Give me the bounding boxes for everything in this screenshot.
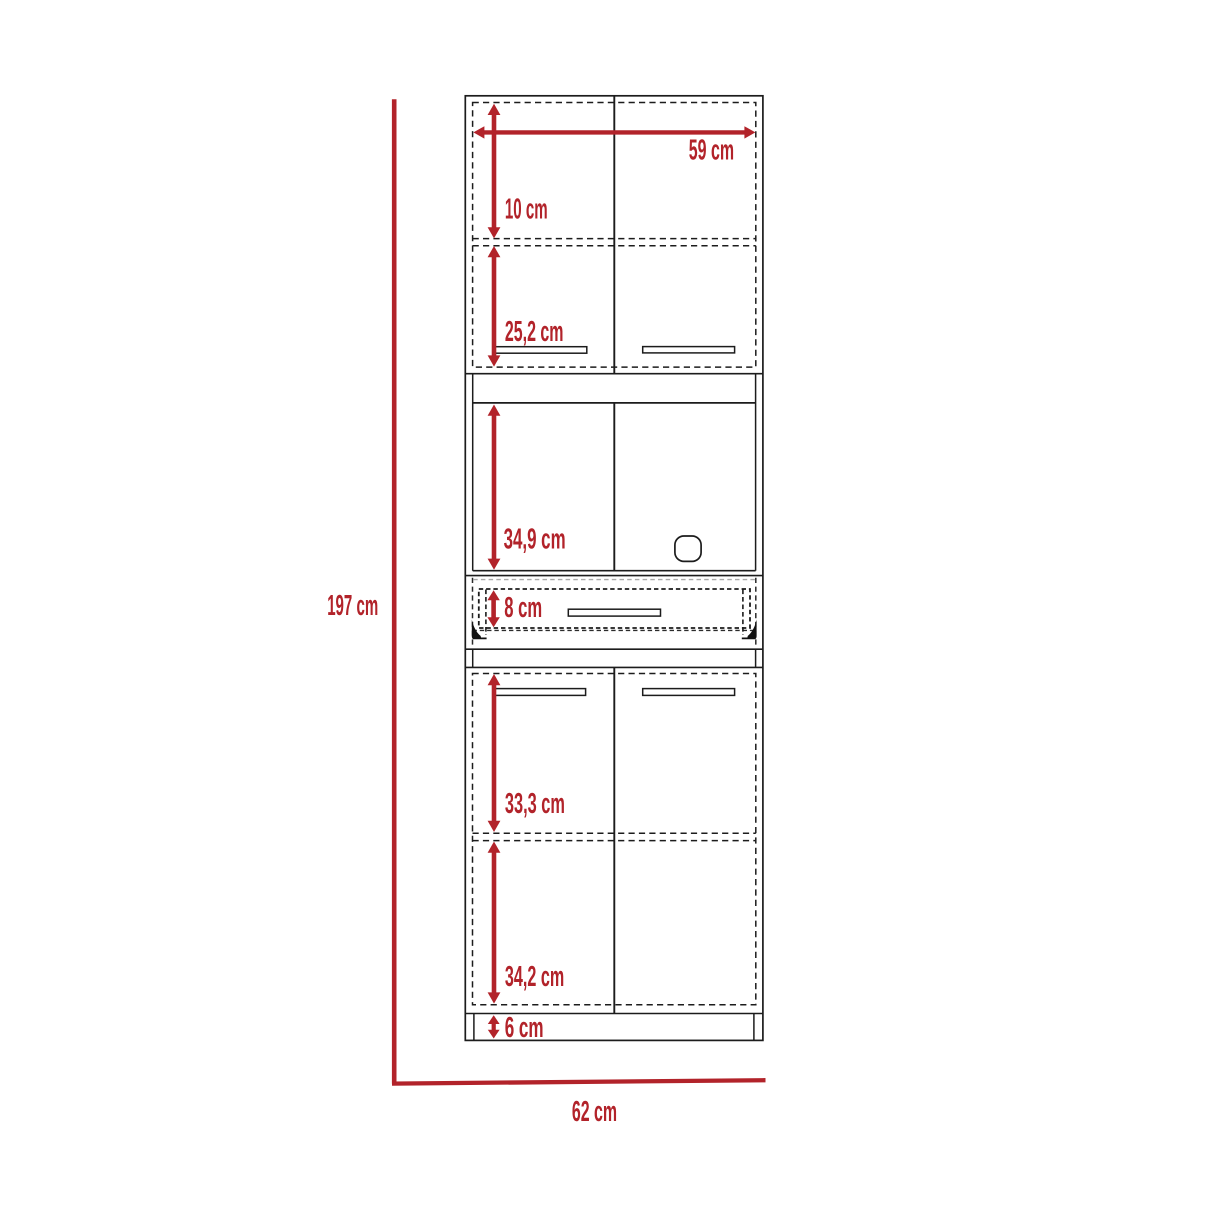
svg-text:33,3 cm: 33,3 cm bbox=[505, 788, 565, 820]
svg-text:62 cm: 62 cm bbox=[572, 1096, 617, 1128]
svg-text:34,2 cm: 34,2 cm bbox=[505, 961, 564, 993]
svg-text:25,2 cm: 25,2 cm bbox=[505, 316, 564, 348]
svg-text:6 cm: 6 cm bbox=[505, 1012, 544, 1044]
svg-text:10 cm: 10 cm bbox=[505, 193, 548, 225]
svg-text:34,9 cm: 34,9 cm bbox=[504, 524, 566, 556]
svg-text:59 cm: 59 cm bbox=[689, 134, 734, 166]
svg-text:8 cm: 8 cm bbox=[504, 592, 542, 624]
svg-text:197 cm: 197 cm bbox=[327, 590, 378, 622]
